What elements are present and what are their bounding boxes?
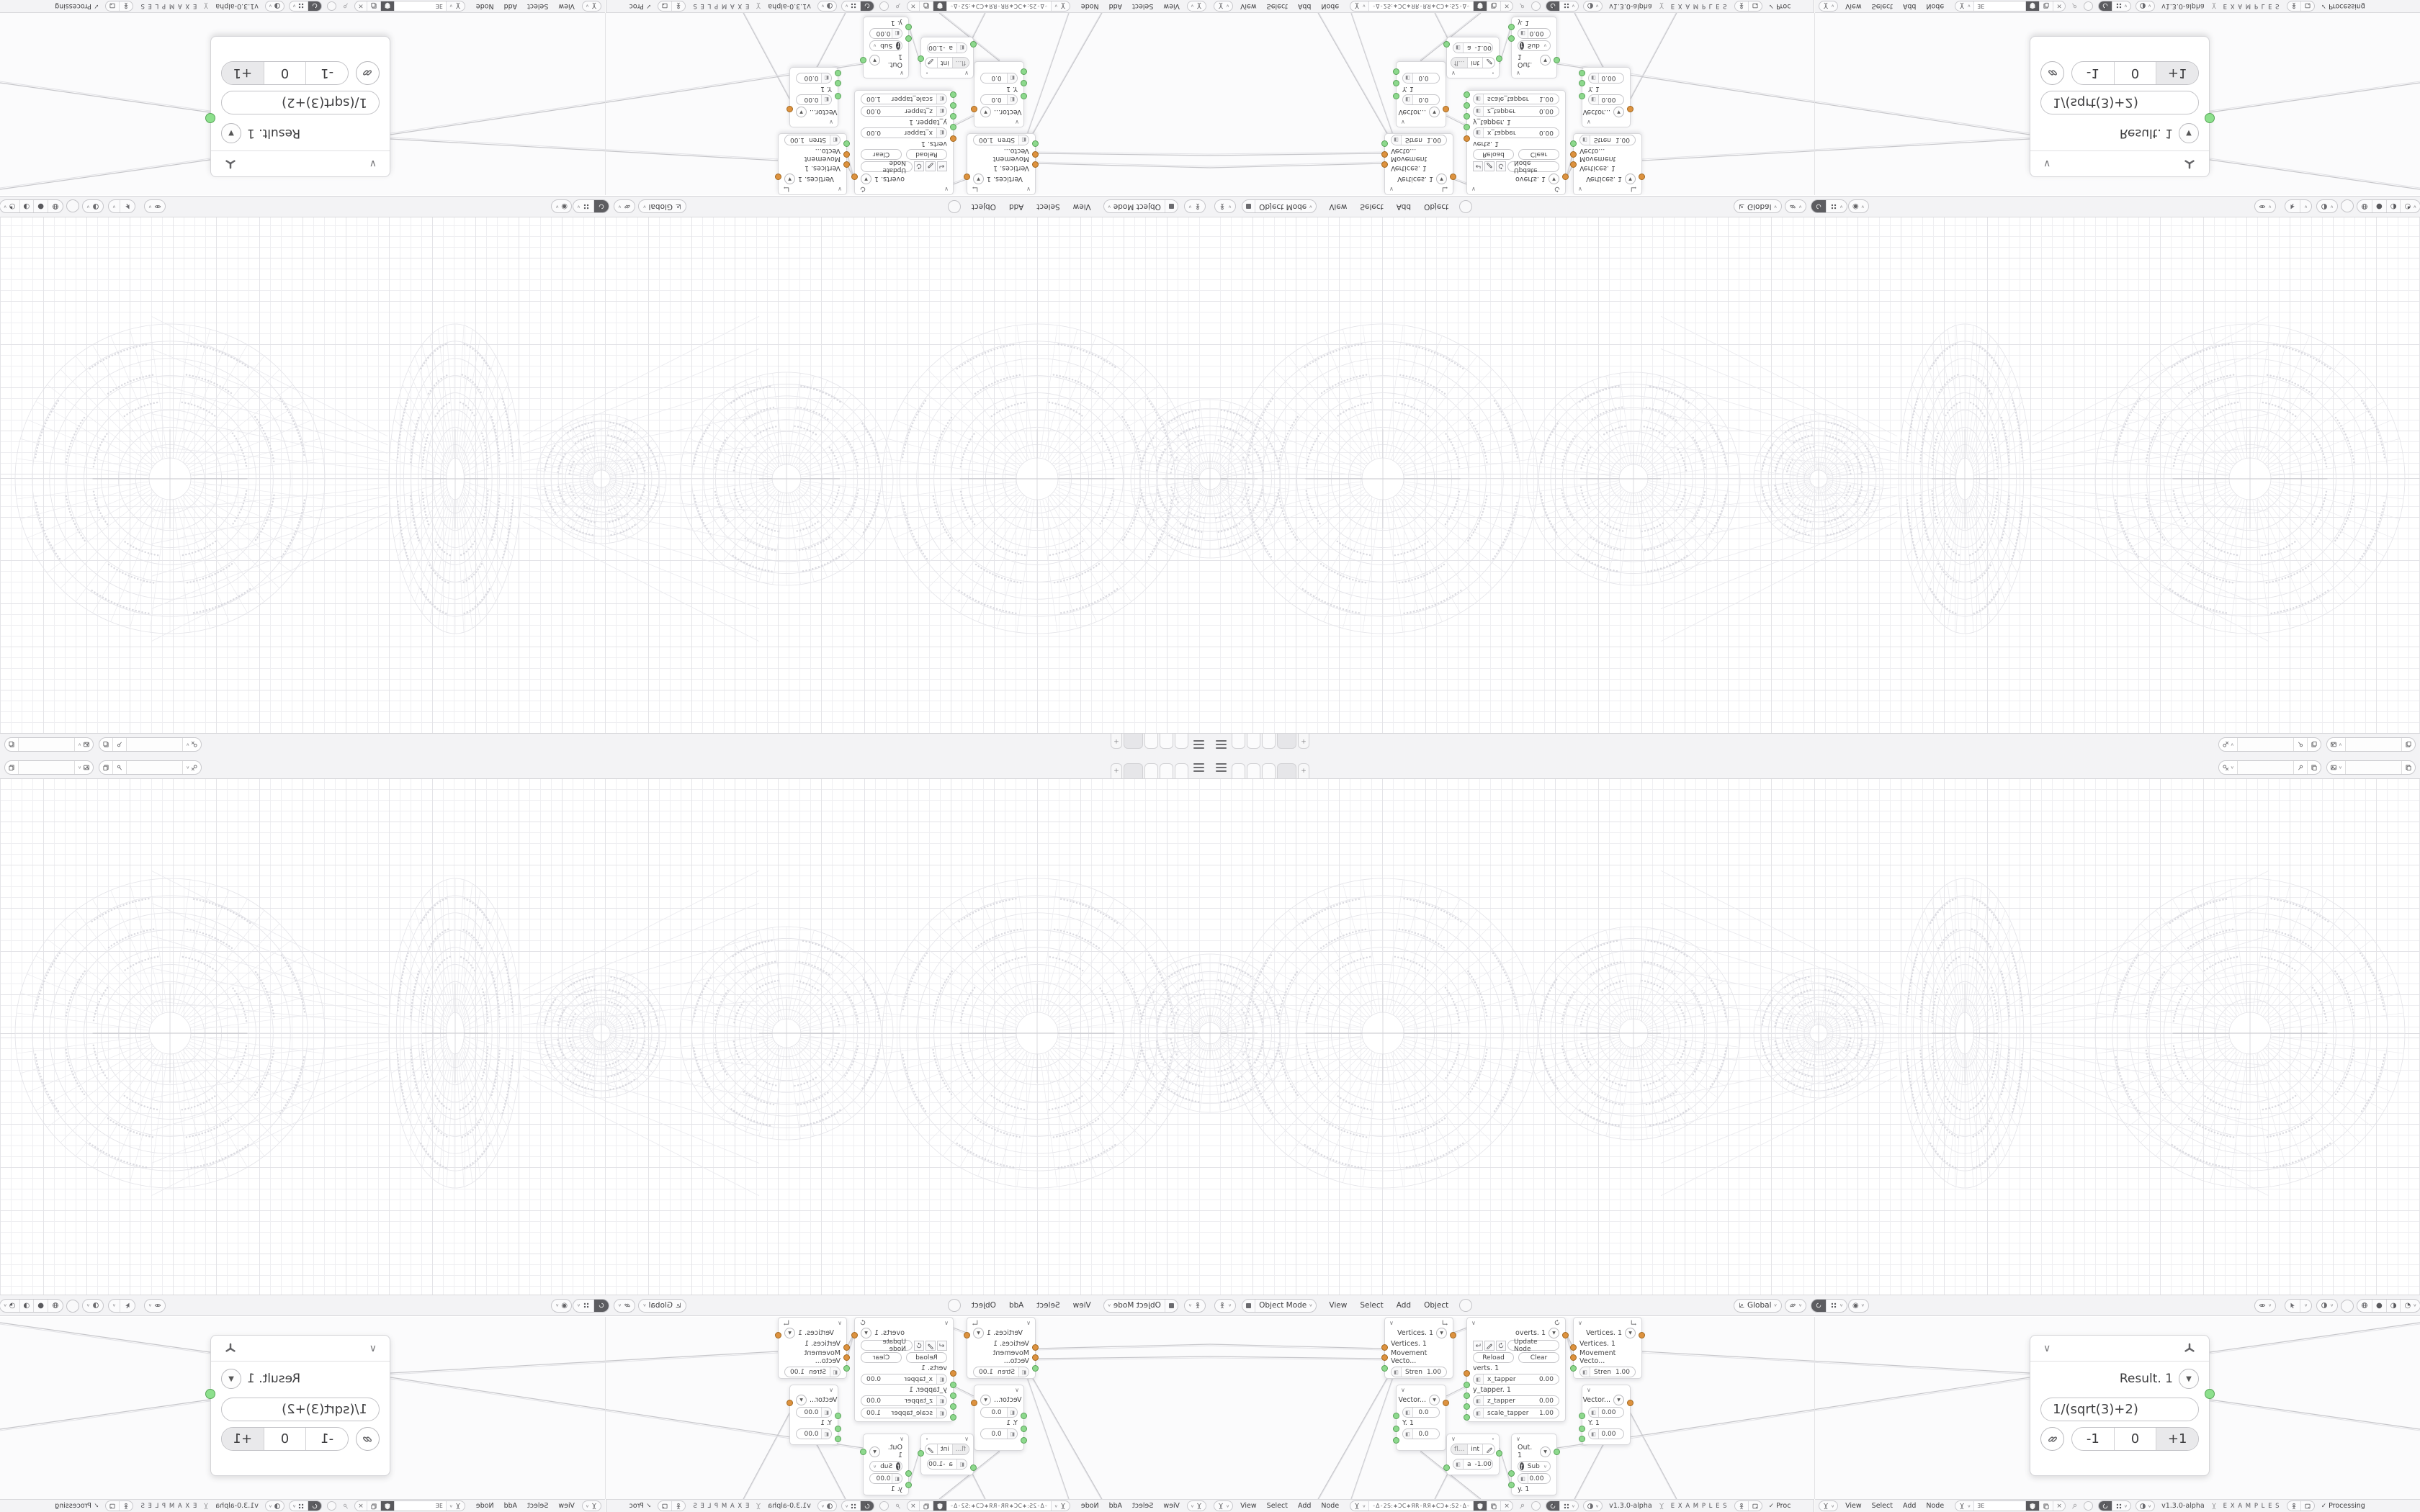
output-socket[interactable] — [786, 1400, 793, 1406]
zero-button[interactable]: 0 — [2115, 1428, 2157, 1450]
node-out[interactable]: ∨ Out. 1▼ ƒSub∨ ◧0.00 y. 1 — [863, 17, 909, 78]
shading-rendered-button[interactable]: ◔∨ — [2401, 1300, 2420, 1312]
app-menu-icon[interactable] — [1193, 763, 1204, 772]
output-socket[interactable] — [1554, 57, 1560, 63]
menu-select[interactable]: Select — [1353, 202, 1389, 211]
editor-type-selector[interactable]: ∨ — [1184, 1299, 1206, 1313]
update-cursor-icon[interactable] — [1484, 1341, 1494, 1351]
scale-tapper-field[interactable]: ◧scale_tapper1.00 — [1473, 94, 1559, 104]
input-socket[interactable] — [835, 1413, 841, 1419]
transform-orientation[interactable]: Global∨ — [638, 200, 686, 214]
workspace-tab[interactable] — [1175, 763, 1188, 778]
vector-x-field[interactable]: ◧0.00 — [796, 94, 832, 105]
output-socket[interactable] — [1496, 55, 1502, 62]
empty-circle-button[interactable] — [879, 1501, 889, 1511]
output-dropdown[interactable]: ▼ — [980, 107, 991, 117]
update-cursor-icon[interactable] — [926, 162, 936, 172]
menu-add[interactable]: Add — [1293, 2, 1316, 10]
examples-menu[interactable]: E X A M P L E S — [2223, 3, 2280, 10]
input-socket[interactable] — [1464, 113, 1470, 120]
stren-field[interactable]: ◧Stren1.00 — [784, 135, 841, 145]
output-dropdown[interactable]: ▼ — [1436, 1328, 1447, 1338]
menu-add[interactable]: Add — [1003, 202, 1030, 211]
value-field[interactable]: ◧0.00 — [869, 1473, 902, 1484]
overlay-controls[interactable]: ∨ — [265, 1, 284, 12]
editor-type-selector[interactable]: ∨ — [1184, 200, 1206, 214]
input-socket[interactable] — [843, 161, 850, 168]
output-socket[interactable] — [1450, 174, 1456, 180]
plus-one-button[interactable]: +1 — [222, 62, 264, 84]
pen-option[interactable] — [925, 58, 937, 68]
vector-z-field[interactable]: ◧0.00 — [796, 73, 832, 84]
node-editor-canvas[interactable]: ∨ Vertices. 1▼ Vertices. 1 Movement Vect… — [0, 1317, 1210, 1499]
input-socket[interactable] — [950, 1414, 956, 1421]
operation-select[interactable]: ƒSub∨ — [869, 40, 902, 51]
shading-solid-button[interactable]: ● — [2372, 201, 2387, 213]
output-socket[interactable] — [851, 1332, 858, 1338]
int-option[interactable]: int — [937, 58, 952, 68]
stren-field[interactable]: ◧Stren1.00 — [973, 1367, 1029, 1377]
empty-circle-button[interactable] — [327, 1501, 336, 1511]
workspace-tab-active[interactable] — [1277, 763, 1296, 778]
input-socket[interactable] — [1570, 151, 1577, 158]
menu-node[interactable]: Node — [1921, 1502, 1949, 1510]
view-layer-name-field[interactable] — [18, 761, 74, 774]
output-dropdown[interactable]: ▼ — [861, 1328, 871, 1338]
window-tool-button[interactable] — [1749, 1501, 1762, 1511]
output-socket[interactable] — [971, 1400, 977, 1406]
person-tool-button[interactable] — [1735, 1501, 1749, 1511]
editor-type-selector[interactable]: ∨ — [1187, 1500, 1206, 1511]
fake-user-shield-icon[interactable] — [1474, 1501, 1487, 1511]
node-overts[interactable]: ∨ overts. 1▼ Update Node Reload Clear ve… — [1466, 1317, 1566, 1422]
output-dropdown[interactable]: ▼ — [1613, 107, 1624, 117]
examples-menu[interactable]: E X A M P L E S — [2223, 1503, 2280, 1510]
window-tool-button[interactable] — [2301, 1501, 2314, 1511]
output-dropdown[interactable]: ▼ — [1436, 174, 1447, 184]
menu-select[interactable]: Select — [1867, 2, 1898, 10]
search-circle-button[interactable] — [948, 1299, 961, 1312]
z-tapper-field[interactable]: ◧z_tapper0.00 — [1473, 1395, 1559, 1406]
menu-select[interactable]: Select — [522, 1502, 553, 1510]
new-copy-icon[interactable] — [8, 741, 15, 748]
menu-view[interactable]: View — [1840, 1502, 1867, 1510]
update-cursor-icon[interactable] — [926, 1341, 936, 1351]
update-return-icon[interactable] — [1473, 162, 1483, 172]
node-convert[interactable]: ∨• fl... int ▼ ◧a-1.00 — [1446, 37, 1500, 78]
person-tool-button[interactable] — [671, 1, 685, 11]
input-socket[interactable] — [1508, 35, 1515, 42]
input-socket[interactable] — [1021, 80, 1027, 86]
snapping-controls[interactable]: ∨ — [1811, 200, 1847, 214]
vector-z-field[interactable]: ◧0.00 — [1588, 73, 1624, 84]
search-circle-button[interactable] — [948, 200, 961, 213]
copy-icon[interactable] — [1487, 1501, 1501, 1511]
node-tree-selector[interactable]: ∨ ◦Δ◦2S:∗ƆC∗ЯR◦RЯ∗CƆ∗:S2◦Δ◦ × — [1350, 1500, 1513, 1511]
node-editor-canvas[interactable]: ∨ Vertices. 1▼ Vertices. 1 Movement Vect… — [0, 13, 1210, 195]
menu-view[interactable]: View — [1067, 1301, 1098, 1310]
collapse-chevron-icon[interactable]: ∨ — [2043, 1343, 2051, 1354]
input-socket[interactable] — [950, 135, 956, 142]
overlays-toggle[interactable]: ∨ — [2316, 200, 2338, 214]
copy-icon[interactable] — [919, 1, 933, 11]
input-socket[interactable] — [1032, 1344, 1039, 1351]
stren-field[interactable]: ◧Stren1.00 — [784, 1367, 841, 1377]
editor-type-selector[interactable]: ∨ — [1214, 200, 1236, 214]
pivot-point-selector[interactable]: ∨ — [1785, 1299, 1806, 1313]
input-socket[interactable] — [950, 1382, 956, 1388]
output-socket[interactable] — [1627, 106, 1633, 112]
input-socket[interactable] — [1464, 1382, 1470, 1388]
update-cycle-icon[interactable] — [1496, 1341, 1506, 1351]
node-convert[interactable]: ∨• fl... int ▼ ◧a-1.00 — [1446, 1434, 1500, 1475]
person-tool-button[interactable] — [2287, 1501, 2301, 1511]
window-tool-button[interactable] — [658, 1501, 671, 1511]
float-option[interactable]: fl... — [952, 58, 969, 68]
node-tree-selector[interactable]: ∨ ƎE × — [1955, 1, 2066, 12]
input-socket[interactable] — [843, 151, 850, 158]
workspace-tab-active[interactable] — [1277, 734, 1296, 749]
snapping-controls[interactable]: ∨ — [289, 1500, 322, 1511]
output-socket[interactable] — [1639, 174, 1645, 180]
shading-wireframe-button[interactable] — [2357, 1300, 2372, 1312]
node-tree-name[interactable]: ◦Δ◦2S:∗ƆC∗ЯR◦RЯ∗CƆ∗:S2◦Δ◦ — [1369, 1501, 1474, 1511]
unlink-x-icon[interactable]: × — [1501, 1501, 1512, 1511]
menu-node[interactable]: Node — [1316, 1502, 1344, 1510]
node-tree-name[interactable]: ƎE — [394, 1, 446, 11]
snapping-controls[interactable]: ∨ — [1811, 1299, 1847, 1313]
input-socket[interactable] — [950, 1370, 956, 1377]
float-option[interactable]: fl... — [1451, 1444, 1468, 1454]
editor-type-selector[interactable]: ∨ — [582, 1, 601, 12]
visibility-toggle[interactable]: ∨ — [2254, 1299, 2276, 1313]
workspace-tab[interactable] — [1160, 763, 1173, 778]
menu-select[interactable]: Select — [1867, 1502, 1898, 1510]
input-socket[interactable] — [835, 1426, 841, 1432]
reload-button[interactable]: Reload — [906, 1352, 947, 1363]
node-tree-selector[interactable]: ∨ ◦Δ◦2S:∗ƆC∗ЯR◦RЯ∗CƆ∗:S2◦Δ◦ × — [907, 1500, 1070, 1511]
workspace-tab-active[interactable] — [1124, 734, 1143, 749]
result-dropdown[interactable]: ▼ — [221, 123, 241, 143]
menu-add[interactable]: Add — [1003, 1301, 1030, 1310]
editor-type-selector[interactable]: ∨ — [1214, 1299, 1236, 1313]
menu-add[interactable]: Add — [1898, 1502, 1921, 1510]
formula-field[interactable]: 1/(sqrt(3)+2) — [2040, 1398, 2199, 1421]
new-copy-icon[interactable] — [2311, 764, 2318, 771]
z-tapper-field[interactable]: ◧z_tapper0.00 — [861, 1395, 947, 1406]
snapping-controls[interactable]: ∨ — [841, 1, 874, 12]
workspace-tab[interactable] — [1262, 734, 1276, 749]
node-tree-name[interactable]: ƎE — [1974, 1, 2026, 11]
input-socket[interactable] — [1393, 1437, 1399, 1444]
output-socket[interactable] — [1562, 174, 1569, 180]
view-layer-selector[interactable]: ∨ — [2326, 737, 2416, 752]
operation-select[interactable]: ƒSub∨ — [869, 1461, 902, 1472]
input-socket[interactable] — [1464, 1414, 1470, 1421]
new-copy-icon[interactable] — [102, 764, 109, 771]
transform-orientation[interactable]: Global∨ — [1734, 1299, 1782, 1313]
update-cycle-icon[interactable] — [914, 162, 924, 172]
snapping-controls[interactable]: ∨ — [1546, 1, 1579, 12]
result-output-socket[interactable] — [205, 1389, 215, 1399]
workspace-tab[interactable] — [1262, 763, 1276, 778]
input-socket[interactable] — [905, 1470, 912, 1477]
examples-menu[interactable]: E X A M P L E S — [692, 1503, 749, 1510]
scene-name-field[interactable] — [2238, 738, 2294, 751]
shading-material-button[interactable]: ◑ — [19, 201, 34, 213]
output-dropdown[interactable]: ▼ — [869, 1446, 880, 1457]
formula-field[interactable]: 1/(sqrt(3)+2) — [221, 1398, 380, 1421]
output-dropdown[interactable]: ▼ — [784, 1328, 795, 1338]
output-socket[interactable] — [1554, 1449, 1560, 1455]
pivot-point-selector[interactable]: ∨ — [614, 1299, 635, 1313]
shading-wireframe-button[interactable] — [48, 201, 63, 213]
int-option[interactable]: int — [937, 1444, 952, 1454]
pivot-point-selector[interactable]: ∨ — [1785, 200, 1806, 214]
reload-button[interactable]: Reload — [906, 149, 947, 160]
input-socket[interactable] — [1381, 151, 1388, 158]
new-copy-icon[interactable] — [2405, 741, 2412, 748]
output-dropdown[interactable]: ▼ — [796, 1395, 807, 1405]
input-socket[interactable] — [1579, 1436, 1585, 1442]
menu-add[interactable]: Add — [499, 2, 522, 10]
shading-material-button[interactable]: ◑ — [19, 1300, 34, 1312]
node-vector-left[interactable]: ∨ Vector...▼ ◧0.0 Y. 1 ◧0.0 — [974, 61, 1024, 127]
stren-field[interactable]: ◧Stren1.00 — [1579, 135, 1636, 145]
input-socket[interactable] — [1464, 91, 1470, 98]
node-tree-name[interactable]: ◦Δ◦2S:∗ƆC∗ЯR◦RЯ∗CƆ∗:S2◦Δ◦ — [946, 1, 1051, 11]
node-vector-right[interactable]: ∨ Vector...▼ ◧0.00 Y. 1 ◧0.00 — [1582, 67, 1631, 127]
update-cycle-icon[interactable] — [1496, 162, 1506, 172]
menu-view[interactable]: View — [1067, 202, 1098, 211]
shading-rendered-button[interactable]: ◔∨ — [0, 1300, 19, 1312]
empty-circle-button[interactable] — [879, 1, 889, 11]
scale-tapper-field[interactable]: ◧scale_tapper1.00 — [1473, 1408, 1559, 1418]
overlay-controls[interactable]: ∨ — [265, 1500, 284, 1511]
overlays-toggle[interactable]: ∨ — [82, 200, 104, 214]
update-node-button[interactable]: Update Node — [1507, 1340, 1559, 1351]
pin-icon[interactable] — [1518, 3, 1525, 10]
output-socket[interactable] — [1562, 1332, 1569, 1338]
overlay-controls[interactable]: ∨ — [1583, 1500, 1603, 1511]
copy-icon[interactable] — [1487, 1, 1501, 11]
app-menu-icon[interactable] — [1216, 740, 1227, 749]
plus-one-button[interactable]: +1 — [222, 1428, 264, 1450]
node-vertices-left[interactable]: ∨ Vertices. 1▼ Vertices. 1 Movement Vect… — [967, 1317, 1036, 1379]
overlays-toggle[interactable]: ∨ — [82, 1299, 104, 1313]
shading-solid-button[interactable]: ● — [2372, 1300, 2387, 1312]
result-dropdown[interactable]: ▼ — [221, 1369, 241, 1389]
editor-divider[interactable] — [605, 13, 606, 195]
menu-view[interactable]: View — [1840, 2, 1867, 10]
overlay-controls[interactable]: ∨ — [817, 1500, 837, 1511]
menu-select[interactable]: Select — [1030, 1301, 1066, 1310]
a-field[interactable]: ◧a-1.00 — [927, 42, 967, 53]
editor-divider[interactable] — [605, 1317, 606, 1499]
vector-x-field[interactable]: ◧0.00 — [1588, 1407, 1624, 1418]
output-socket[interactable] — [775, 174, 781, 180]
input-socket[interactable] — [1393, 80, 1399, 86]
examples-menu[interactable]: E X A M P L E S — [140, 3, 197, 10]
window-tool-button[interactable] — [2301, 1, 2314, 11]
node-vector-right[interactable]: ∨ Vector...▼ ◧0.00 Y. 1 ◧0.00 — [789, 67, 838, 127]
unlink-x-icon[interactable]: × — [355, 1, 367, 11]
snapping-controls[interactable]: ∨ — [1546, 1500, 1579, 1511]
menu-view[interactable]: View — [1322, 1301, 1353, 1310]
collapse-chevron-icon[interactable]: ∨ — [369, 158, 377, 170]
node-tree-name[interactable]: ◦Δ◦2S:∗ƆC∗ЯR◦RЯ∗CƆ∗:S2◦Δ◦ — [1369, 1, 1474, 11]
node-tree-selector[interactable]: ∨ ƎE × — [1955, 1500, 2066, 1511]
menu-object[interactable]: Object — [1417, 202, 1455, 211]
menu-add[interactable]: Add — [1390, 202, 1417, 211]
int-option[interactable]: int — [1468, 1444, 1483, 1454]
examples-menu[interactable]: E X A M P L E S — [140, 1503, 197, 1510]
node-convert[interactable]: ∨• fl... int ▼ ◧a-1.00 — [920, 37, 974, 78]
pin-icon[interactable] — [342, 3, 349, 10]
empty-circle-button[interactable] — [2084, 1, 2093, 11]
update-node-button[interactable]: Update Node — [1507, 161, 1559, 172]
fake-user-shield-icon[interactable] — [380, 1501, 394, 1511]
person-tool-button[interactable] — [1735, 1, 1749, 11]
result-output-socket[interactable] — [205, 113, 215, 123]
x-tapper-field[interactable]: ◧x_tapper0.00 — [1473, 1374, 1559, 1385]
scene-selector[interactable]: ∨ — [2218, 737, 2321, 752]
editor-type-selector[interactable]: ∨ — [1819, 1, 1838, 12]
unlink-x-icon[interactable]: × — [907, 1, 919, 11]
input-socket[interactable] — [1032, 1354, 1039, 1361]
overlays-toggle[interactable]: ∨ — [2316, 1299, 2338, 1313]
input-socket[interactable] — [1464, 135, 1470, 142]
unlink-x-icon[interactable]: × — [1501, 1, 1512, 11]
vector-z-field[interactable]: ◧0.0 — [1402, 1428, 1440, 1439]
copy-icon[interactable] — [2040, 1501, 2053, 1511]
mode-selector[interactable]: Object Mode∨ — [1103, 1299, 1178, 1313]
fake-user-shield-icon[interactable] — [1474, 1, 1487, 11]
result-output-socket[interactable] — [2205, 113, 2215, 123]
menu-view[interactable]: View — [1235, 2, 1262, 10]
node-tree-name[interactable]: ƎE — [1974, 1501, 2026, 1511]
output-dropdown[interactable]: ▼ — [1625, 174, 1636, 184]
proportional-edit[interactable]: ◉∨ — [1848, 200, 1869, 214]
workspace-tab[interactable] — [1247, 734, 1260, 749]
person-tool-button[interactable] — [119, 1501, 133, 1511]
input-socket[interactable] — [1393, 93, 1399, 99]
snapping-controls[interactable]: ∨ — [573, 1299, 609, 1313]
menu-select[interactable]: Select — [1262, 1502, 1293, 1510]
window-tool-button[interactable] — [106, 1501, 119, 1511]
editor-divider[interactable] — [1814, 13, 1815, 195]
gizmo-toggle[interactable]: ∨ — [108, 1299, 135, 1313]
clear-button[interactable]: Clear — [1518, 149, 1559, 160]
output-socket[interactable] — [1443, 106, 1449, 112]
xray-toggle[interactable] — [2341, 1300, 2354, 1313]
workspace-tab[interactable] — [1247, 763, 1260, 778]
scene-selector[interactable]: ∨ — [2218, 760, 2321, 775]
node-vertices-left[interactable]: ∨ Vertices. 1▼ Vertices. 1 Movement Vect… — [1384, 1317, 1453, 1379]
scale-tapper-field[interactable]: ◧scale_tapper1.00 — [861, 94, 947, 104]
vector-x-field[interactable]: ◧0.00 — [1588, 94, 1624, 105]
transform-orientation[interactable]: Global∨ — [1734, 200, 1782, 214]
pin-icon[interactable] — [2297, 764, 2304, 771]
copy-icon[interactable] — [367, 1501, 380, 1511]
input-socket[interactable] — [843, 1344, 850, 1351]
pin-icon[interactable] — [116, 741, 123, 748]
stren-field[interactable]: ◧Stren1.00 — [1391, 135, 1447, 145]
examples-menu[interactable]: E X A M P L E S — [1671, 3, 1728, 10]
output-dropdown[interactable]: ▼ — [1549, 174, 1559, 184]
z-tapper-field[interactable]: ◧z_tapper0.00 — [861, 106, 947, 117]
menu-node[interactable]: Node — [1076, 1502, 1104, 1510]
stren-field[interactable]: ◧Stren1.00 — [1579, 1367, 1636, 1377]
output-dropdown[interactable]: ▼ — [869, 55, 880, 66]
input-socket[interactable] — [1381, 1354, 1388, 1361]
viewport-3d[interactable] — [1210, 779, 2420, 1295]
input-socket[interactable] — [970, 41, 977, 48]
proportional-edit[interactable]: ◉∨ — [1848, 1299, 1869, 1313]
input-socket[interactable] — [1508, 1482, 1515, 1488]
vector-x-field[interactable]: ◧0.00 — [796, 1407, 832, 1418]
node-vertices-right[interactable]: ∨ Vertices. 1▼ Vertices. 1 Movement Vect… — [778, 1317, 847, 1379]
output-dropdown[interactable]: ▼ — [1540, 1446, 1551, 1457]
shading-material-button[interactable]: ◑ — [2387, 1300, 2401, 1312]
z-tapper-field[interactable]: ◧z_tapper0.00 — [1473, 106, 1559, 117]
pen-option[interactable] — [925, 1444, 937, 1454]
pivot-point-selector[interactable]: ∨ — [614, 200, 635, 214]
update-node-button[interactable]: Update Node — [861, 161, 913, 172]
x-tapper-field[interactable]: ◧x_tapper0.00 — [861, 127, 947, 138]
fake-user-shield-icon[interactable] — [933, 1501, 946, 1511]
workspace-tab[interactable] — [1175, 734, 1188, 749]
examples-menu[interactable]: E X A M P L E S — [1671, 1503, 1728, 1510]
vector-x-field[interactable]: ◧0.0 — [1402, 1407, 1440, 1418]
app-menu-icon[interactable] — [1216, 763, 1227, 772]
reload-button[interactable]: Reload — [1473, 149, 1514, 160]
input-socket[interactable] — [1393, 1426, 1399, 1432]
fake-user-shield-icon[interactable] — [933, 1, 946, 11]
vector-z-field[interactable]: ◧0.0 — [1402, 73, 1440, 84]
a-field[interactable]: ◧a-1.00 — [1453, 42, 1493, 53]
input-socket[interactable] — [1381, 140, 1388, 147]
scene-selector[interactable]: ∨ — [99, 737, 202, 752]
pen-option[interactable] — [1483, 1444, 1495, 1454]
fake-user-shield-icon[interactable] — [2026, 1501, 2040, 1511]
visibility-toggle[interactable]: ∨ — [2254, 200, 2276, 214]
input-socket[interactable] — [1443, 1464, 1450, 1471]
output-dropdown[interactable]: ▼ — [1549, 1328, 1559, 1338]
menu-view[interactable]: View — [553, 2, 580, 10]
node-editor-canvas[interactable]: ∨ Vertices. 1▼ Vertices. 1 Movement Vect… — [1210, 1317, 2420, 1499]
minus-one-button[interactable]: -1 — [2072, 1428, 2115, 1450]
input-socket[interactable] — [1464, 1392, 1470, 1399]
empty-circle-button[interactable] — [2084, 1501, 2093, 1511]
shading-rendered-button[interactable]: ◔∨ — [2401, 201, 2420, 213]
workspace-tab[interactable] — [1144, 763, 1158, 778]
window-tool-button[interactable] — [658, 1, 671, 11]
input-socket[interactable] — [905, 35, 912, 42]
overlay-controls[interactable]: ∨ — [817, 1, 837, 12]
output-dropdown[interactable]: ▼ — [1429, 107, 1440, 117]
empty-circle-button[interactable] — [1531, 1, 1541, 11]
clear-button[interactable]: Clear — [1518, 1352, 1559, 1363]
scene-name-field[interactable] — [126, 761, 182, 774]
operation-select[interactable]: ƒSub∨ — [1518, 1461, 1551, 1472]
pin-icon[interactable] — [2297, 741, 2304, 748]
output-socket[interactable] — [775, 1332, 781, 1338]
clear-button[interactable]: Clear — [861, 149, 902, 160]
output-socket[interactable] — [964, 1332, 970, 1338]
menu-add[interactable]: Add — [1898, 2, 1921, 10]
vector-z-field[interactable]: ◧0.00 — [1588, 1428, 1624, 1439]
